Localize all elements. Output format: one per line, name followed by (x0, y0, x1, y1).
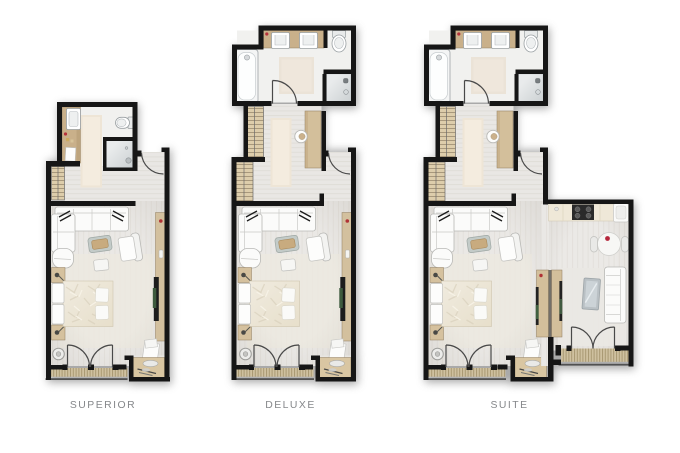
svg-text:DELUXE: DELUXE (265, 400, 316, 411)
svg-text:SUPERIOR: SUPERIOR (70, 400, 136, 411)
svg-text:SUITE: SUITE (490, 400, 528, 411)
